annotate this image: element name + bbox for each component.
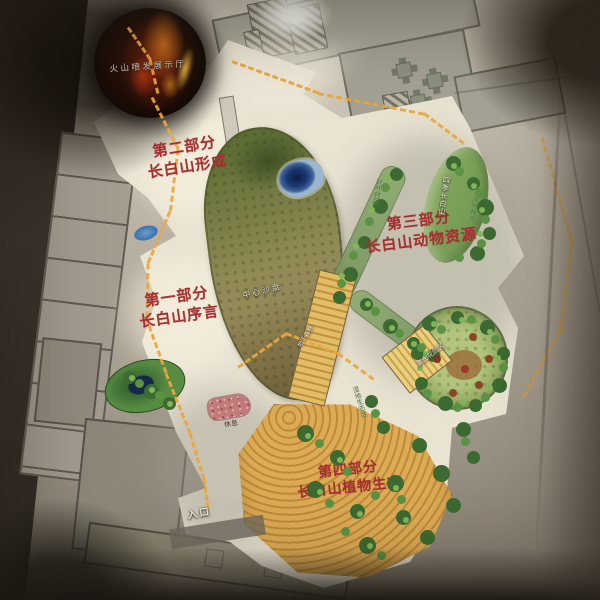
table-icon [426, 72, 444, 90]
route-segment [522, 331, 561, 398]
floorplan-photo: 火山喷发展示厅 中心沙盘 第四部分 长白山植物生态 [0, 0, 600, 600]
backroom-a [34, 337, 103, 428]
garden-soil-patch [446, 350, 482, 380]
small-booth [204, 548, 224, 568]
flower-clumps [0, 0, 8, 8]
route-segment [559, 239, 573, 332]
route-segment [541, 137, 573, 240]
table-icon [395, 61, 413, 79]
